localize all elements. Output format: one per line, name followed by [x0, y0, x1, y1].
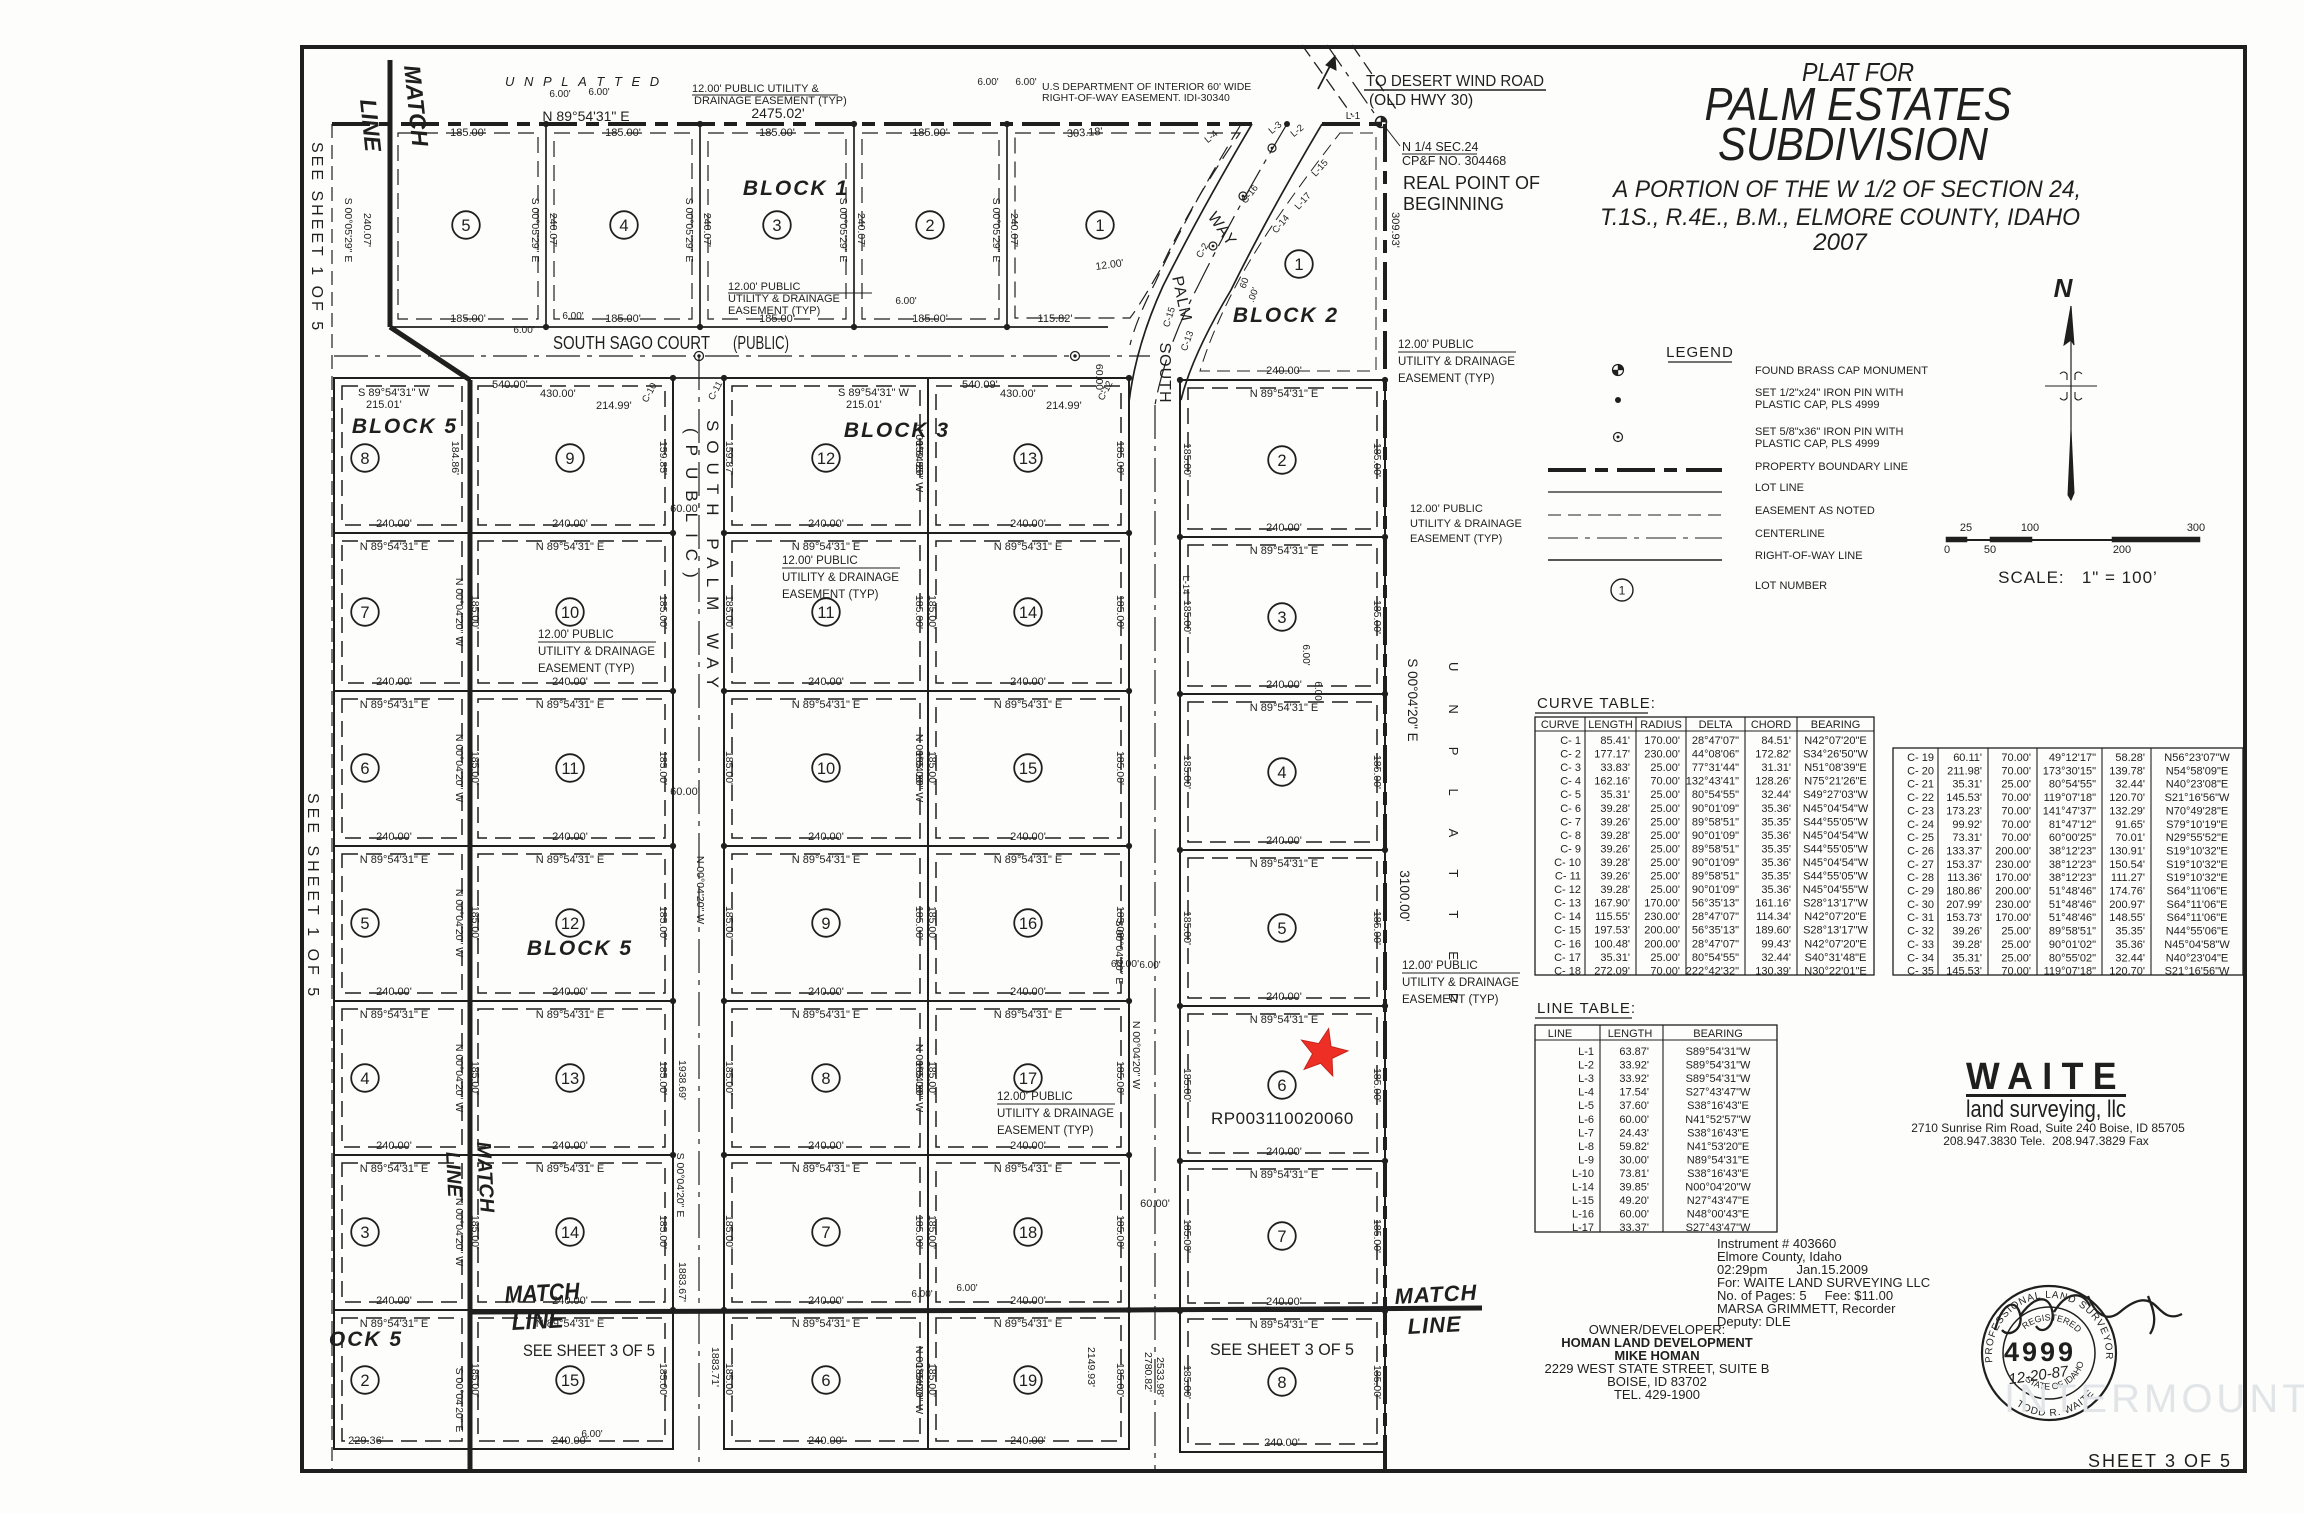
svg-text:119°07'18": 119°07'18" — [2044, 792, 2097, 804]
svg-text:8: 8 — [360, 450, 369, 468]
svg-text:C- 32: C- 32 — [1907, 926, 1934, 938]
svg-text:240.00': 240.00' — [808, 1140, 844, 1152]
svg-text:208.947.3830 Tele. 208.947.38: 208.947.3830 Tele. 208.947.3829 Fax — [1943, 1134, 2149, 1148]
svg-text:185.00': 185.00' — [1114, 441, 1126, 475]
svg-text:159.87': 159.87' — [723, 441, 735, 475]
svg-text:BEGINNING: BEGINNING — [1403, 194, 1504, 214]
svg-text:170.00': 170.00' — [1995, 872, 2031, 884]
svg-text:N48°00'43"E: N48°00'43"E — [1687, 1209, 1749, 1221]
svg-text:14: 14 — [1019, 604, 1037, 622]
svg-text:C- 2: C- 2 — [1560, 749, 1581, 761]
svg-text:189.60': 189.60' — [1755, 925, 1791, 937]
svg-text:N27°43'47"E: N27°43'47"E — [1687, 1195, 1749, 1207]
svg-text:MATCH: MATCH — [504, 1278, 581, 1309]
svg-text:BEARING: BEARING — [1693, 1028, 1743, 1040]
svg-text:LENGTH: LENGTH — [1588, 719, 1633, 731]
svg-text:19: 19 — [1019, 1372, 1037, 1390]
svg-text:SEE SHEET 3 OF 5: SEE SHEET 3 OF 5 — [1210, 1340, 1354, 1359]
svg-text:S 00°05'29" E: S 00°05'29" E — [529, 198, 541, 263]
svg-text:C- 13: C- 13 — [1554, 898, 1581, 910]
svg-text:60.00': 60.00' — [1140, 1198, 1170, 1210]
svg-text:185.00': 185.00' — [469, 595, 481, 629]
svg-text:120.70': 120.70' — [2109, 966, 2145, 978]
svg-text:25.00': 25.00' — [1650, 816, 1680, 828]
svg-text:C- 14: C- 14 — [1554, 911, 1581, 923]
svg-text:N41°53'20"E: N41°53'20"E — [1687, 1141, 1749, 1153]
svg-text:28°47'07": 28°47'07" — [1692, 938, 1739, 950]
svg-text:309.93': 309.93' — [1389, 212, 1401, 248]
svg-text:185.00': 185.00' — [657, 1363, 669, 1397]
svg-text:207.99': 207.99' — [1946, 899, 1982, 911]
svg-text:44°08'06": 44°08'06" — [1692, 749, 1739, 761]
svg-text:120.70': 120.70' — [2109, 792, 2145, 804]
svg-text:N 89°54'31" E: N 89°54'31" E — [1250, 702, 1319, 714]
svg-text:24.43': 24.43' — [1619, 1127, 1649, 1139]
svg-text:(OLD HWY 30): (OLD HWY 30) — [1369, 92, 1473, 109]
svg-text:161.16': 161.16' — [1755, 898, 1791, 910]
svg-text:90°01'09": 90°01'09" — [1692, 884, 1739, 896]
svg-text:170.00': 170.00' — [1995, 912, 2031, 924]
svg-text:L-9: L-9 — [1578, 1154, 1594, 1166]
svg-text:56°35'13": 56°35'13" — [1692, 925, 1739, 937]
svg-text:N 89°54'31" E: N 89°54'31" E — [994, 854, 1063, 866]
svg-text:170.00': 170.00' — [1644, 898, 1680, 910]
svg-text:S21°16'56"W: S21°16'56"W — [2165, 966, 2230, 978]
svg-text:N 89°54'31" E: N 89°54'31" E — [994, 1009, 1063, 1021]
svg-text:CHORD: CHORD — [1751, 719, 1791, 731]
svg-text:C- 22: C- 22 — [1907, 792, 1934, 804]
svg-text:1: 1 — [1095, 217, 1104, 235]
svg-text:90°01'02": 90°01'02" — [2049, 939, 2096, 951]
svg-text:200.97': 200.97' — [2109, 899, 2145, 911]
svg-text:25.00': 25.00' — [1650, 803, 1680, 815]
svg-text:L-14: L-14 — [1180, 575, 1191, 594]
svg-text:56°35'13": 56°35'13" — [1692, 898, 1739, 910]
svg-text:35.35': 35.35' — [1761, 871, 1791, 883]
svg-text:12.00' PUBLIC: 12.00' PUBLIC — [782, 555, 858, 567]
svg-text:91.65': 91.65' — [2115, 819, 2145, 831]
svg-text:25.00': 25.00' — [1650, 952, 1680, 964]
svg-text:2: 2 — [925, 217, 934, 235]
svg-text:185.00': 185.00' — [1371, 755, 1383, 789]
svg-text:185.00': 185.00' — [1181, 1365, 1193, 1399]
svg-text:200: 200 — [2113, 544, 2131, 556]
svg-text:39.28': 39.28' — [1600, 884, 1630, 896]
svg-text:N 89°54'31" E: N 89°54'31" E — [792, 541, 861, 553]
svg-text:240.00': 240.00' — [1010, 676, 1046, 688]
svg-text:L-15: L-15 — [1572, 1195, 1594, 1207]
svg-text:L-17: L-17 — [1572, 1222, 1594, 1234]
svg-text:60°00'25": 60°00'25" — [2049, 832, 2096, 844]
svg-text:185.00': 185.00' — [926, 1363, 938, 1397]
svg-text:240.07': 240.07' — [1008, 213, 1020, 247]
svg-text:6.00': 6.00' — [977, 77, 998, 88]
svg-text:230.00': 230.00' — [1644, 911, 1680, 923]
svg-text:185.00': 185.00' — [926, 1061, 938, 1095]
svg-text:N 89°54'31" E: N 89°54'31" E — [360, 1163, 429, 1175]
svg-text:N 89°54'31" E: N 89°54'31" E — [536, 1163, 605, 1175]
svg-text:EASEMENT (TYP): EASEMENT (TYP) — [728, 305, 820, 317]
svg-text:153.73': 153.73' — [1946, 912, 1982, 924]
svg-text:185.00': 185.00' — [657, 1061, 669, 1095]
svg-text:RIGHT-OF-WAY LINE: RIGHT-OF-WAY LINE — [1755, 550, 1863, 562]
svg-text:70.00': 70.00' — [2001, 765, 2031, 777]
svg-text:FOUND BRASS CAP MONUMENT: FOUND BRASS CAP MONUMENT — [1755, 365, 1928, 377]
svg-text:BLOCK 5: BLOCK 5 — [352, 415, 458, 438]
svg-text:73.31': 73.31' — [1952, 832, 1982, 844]
svg-text:185.00': 185.00' — [450, 127, 486, 139]
svg-text:C- 34: C- 34 — [1907, 952, 1934, 964]
svg-text:37.60': 37.60' — [1619, 1100, 1649, 1112]
svg-text:25.00': 25.00' — [1650, 857, 1680, 869]
svg-text:35.31': 35.31' — [1952, 779, 1982, 791]
svg-text:0: 0 — [1944, 544, 1950, 556]
svg-text:S89°54'31"W: S89°54'31"W — [1686, 1060, 1751, 1072]
svg-text:3100.00': 3100.00' — [1397, 870, 1412, 921]
svg-text:185.00': 185.00' — [605, 127, 641, 139]
svg-text:N 89°54'31" E: N 89°54'31" E — [536, 541, 605, 553]
svg-text:SET 1/2"x24" IRON PIN WITH: SET 1/2"x24" IRON PIN WITH — [1755, 387, 1903, 399]
svg-text:BLOCK 2: BLOCK 2 — [1233, 304, 1339, 327]
svg-text:N29°55'52"E: N29°55'52"E — [2166, 832, 2228, 844]
svg-text:240.00': 240.00' — [552, 518, 588, 530]
svg-text:C- 24: C- 24 — [1907, 819, 1934, 831]
svg-text:89°58'51": 89°58'51" — [1692, 816, 1739, 828]
svg-text:S 00°04'20" E: S 00°04'20" E — [1113, 920, 1125, 985]
svg-text:N44°55'06"E: N44°55'06"E — [2166, 926, 2228, 938]
svg-text:C- 35: C- 35 — [1907, 966, 1934, 978]
svg-text:RADIUS: RADIUS — [1640, 719, 1682, 731]
svg-text:C- 28: C- 28 — [1907, 872, 1934, 884]
svg-text:SOUTH SAGO COURT: SOUTH SAGO COURT — [553, 333, 710, 353]
svg-text:N42°07'20"E: N42°07'20"E — [1804, 735, 1866, 747]
svg-text:N56°23'07"W: N56°23'07"W — [2164, 752, 2230, 764]
svg-text:2: 2 — [1277, 452, 1286, 470]
svg-text:185.00': 185.00' — [1371, 600, 1383, 634]
svg-text:CURVE: CURVE — [1541, 719, 1579, 731]
svg-text:N54°58'09"E: N54°58'09"E — [2166, 765, 2228, 777]
svg-text:185.00': 185.00' — [1371, 1365, 1383, 1399]
svg-text:185.00': 185.00' — [1371, 443, 1383, 477]
svg-text:4: 4 — [1277, 764, 1286, 782]
svg-text:77°31'44": 77°31'44" — [1692, 762, 1739, 774]
svg-text:10: 10 — [817, 760, 835, 778]
svg-text:S38°16'43"E: S38°16'43"E — [1687, 1127, 1749, 1139]
svg-text:185.00': 185.00' — [1114, 595, 1126, 629]
svg-text:N 89°54'31" E: N 89°54'31" E — [1250, 1014, 1319, 1026]
svg-text:50: 50 — [1984, 544, 1996, 556]
svg-text:119°07'18": 119°07'18" — [2044, 966, 2097, 978]
svg-text:S 00°04'20" E: S 00°04'20" E — [453, 1368, 465, 1433]
svg-text:MATCH: MATCH — [1394, 1280, 1478, 1309]
svg-text:BLOCK 1: BLOCK 1 — [743, 177, 849, 200]
svg-text:6.00': 6.00' — [956, 1283, 977, 1294]
svg-text:115.82': 115.82' — [1038, 313, 1073, 325]
svg-text:240.00': 240.00' — [552, 676, 588, 688]
svg-text:215.01': 215.01' — [846, 399, 882, 411]
svg-text:173°30'15": 173°30'15" — [2043, 765, 2096, 777]
svg-text:39.28': 39.28' — [1600, 830, 1630, 842]
svg-text:SET 5/8"x36" IRON PIN WITH: SET 5/8"x36" IRON PIN WITH — [1755, 426, 1903, 438]
svg-text:32.44': 32.44' — [1761, 952, 1791, 964]
svg-text:5: 5 — [360, 915, 369, 933]
svg-text:35.36': 35.36' — [1761, 857, 1791, 869]
svg-text:12.00’ PUBLIC: 12.00’ PUBLIC — [1410, 503, 1483, 515]
svg-text:28°47'07": 28°47'07" — [1692, 735, 1739, 747]
svg-text:N51°08'39"E: N51°08'39"E — [1804, 762, 1866, 774]
svg-text:6.00': 6.00' — [911, 1289, 932, 1300]
svg-text:6: 6 — [1277, 1077, 1286, 1095]
svg-text:80°54'55": 80°54'55" — [1692, 952, 1739, 964]
svg-text:N 00°04'20" W: N 00°04'20" W — [453, 1198, 465, 1266]
svg-text:N45°04'55"W: N45°04'55"W — [1803, 884, 1869, 896]
svg-text:S40°31'48"E: S40°31'48"E — [1805, 952, 1867, 964]
svg-text:185.00': 185.00' — [913, 906, 925, 940]
svg-text:200.00': 200.00' — [1644, 925, 1680, 937]
svg-text:185.00': 185.00' — [912, 127, 948, 139]
svg-text:N41°52'57"W: N41°52'57"W — [1685, 1114, 1751, 1126]
svg-text:240.00': 240.00' — [1266, 365, 1302, 377]
svg-text:L-3: L-3 — [1578, 1073, 1594, 1085]
svg-text:8: 8 — [1277, 1374, 1286, 1392]
svg-text:185.00': 185.00' — [1114, 1061, 1126, 1095]
svg-text:39.26': 39.26' — [1952, 926, 1982, 938]
svg-text:LINE: LINE — [1407, 1311, 1463, 1339]
svg-text:28°47'07": 28°47'07" — [1692, 911, 1739, 923]
svg-text:N 00°04'20" W: N 00°04'20" W — [453, 734, 465, 802]
svg-text:1883.67': 1883.67' — [676, 1262, 688, 1302]
svg-text:90°01'09": 90°01'09" — [1692, 803, 1739, 815]
svg-text:113.36': 113.36' — [1947, 872, 1982, 884]
svg-text:N 89°54'31" E: N 89°54'31" E — [536, 854, 605, 866]
svg-text:185.00': 185.00' — [913, 595, 925, 629]
svg-text:UTILITY & DRAINAGE: UTILITY & DRAINAGE — [1402, 977, 1519, 989]
svg-text:12: 12 — [817, 450, 835, 468]
svg-text:N40°23'08"E: N40°23'08"E — [2166, 779, 2228, 791]
svg-text:25.00': 25.00' — [1650, 843, 1680, 855]
svg-text:185.00': 185.00' — [605, 313, 641, 325]
svg-text:C- 10: C- 10 — [1554, 857, 1581, 869]
svg-text:230.00': 230.00' — [1995, 899, 2031, 911]
svg-text:L-4: L-4 — [1578, 1087, 1594, 1099]
svg-text:25.00': 25.00' — [2001, 939, 2031, 951]
svg-text:C- 18: C- 18 — [1554, 965, 1581, 977]
svg-text:2007: 2007 — [1812, 229, 1868, 256]
svg-text:240.00': 240.00' — [808, 986, 844, 998]
svg-text:C- 20: C- 20 — [1907, 765, 1934, 777]
svg-text:S19°10'32"E: S19°10'32"E — [2166, 872, 2228, 884]
svg-text:240.00': 240.00' — [1266, 1296, 1302, 1308]
svg-text:C- 29: C- 29 — [1907, 886, 1934, 898]
svg-text:49°12'17": 49°12'17" — [2049, 752, 2096, 764]
svg-text:C- 9: C- 9 — [1560, 843, 1581, 855]
svg-text:S21°16'56"W: S21°16'56"W — [2165, 792, 2230, 804]
svg-text:240.00': 240.00' — [376, 986, 412, 998]
svg-text:1938.69': 1938.69' — [676, 1060, 688, 1100]
svg-text:185.00': 185.00' — [926, 751, 938, 785]
svg-text:229.36': 229.36' — [348, 1435, 384, 1447]
svg-text:39.26': 39.26' — [1600, 816, 1630, 828]
svg-text:C- 5: C- 5 — [1560, 789, 1581, 801]
svg-text:N 89°54'31" E: N 89°54'31" E — [360, 854, 429, 866]
svg-text:240.00': 240.00' — [1010, 1295, 1046, 1307]
svg-text:58.28': 58.28' — [2115, 752, 2145, 764]
svg-text:240.00': 240.00' — [376, 1140, 412, 1152]
svg-text:111.27': 111.27' — [2111, 872, 2145, 884]
svg-text:N75°21'26"E: N75°21'26"E — [1804, 776, 1866, 788]
svg-text:N 1/4 SEC.24: N 1/4 SEC.24 — [1402, 140, 1478, 154]
svg-text:35.36': 35.36' — [2115, 939, 2145, 951]
svg-text:185.00': 185.00' — [1371, 1219, 1383, 1253]
svg-text:25.00': 25.00' — [2001, 926, 2031, 938]
svg-text:14: 14 — [561, 1224, 579, 1242]
svg-text:S28°13'17"W: S28°13'17"W — [1803, 925, 1868, 937]
svg-text:128.26': 128.26' — [1755, 776, 1791, 788]
svg-text:185.00': 185.00' — [1181, 600, 1193, 634]
svg-text:C- 27: C- 27 — [1907, 859, 1934, 871]
svg-text:S 89°54'31" W: S 89°54'31" W — [838, 387, 910, 399]
svg-text:240.00': 240.00' — [1010, 1435, 1046, 1447]
svg-text:200.00': 200.00' — [1644, 938, 1680, 950]
svg-text:TO DESERT WIND ROAD: TO DESERT WIND ROAD — [1366, 73, 1544, 90]
svg-text:N89°54'31"E: N89°54'31"E — [1687, 1154, 1749, 1166]
svg-text:N 00°04'20" W: N 00°04'20" W — [913, 1346, 925, 1414]
svg-text:132°43'41": 132°43'41" — [1686, 776, 1739, 788]
svg-text:39.26': 39.26' — [1600, 871, 1630, 883]
svg-text:51°48'46": 51°48'46" — [2049, 886, 2096, 898]
svg-text:PLASTIC CAP, PLS 4999: PLASTIC CAP, PLS 4999 — [1755, 438, 1880, 450]
svg-text:35.35': 35.35' — [1761, 843, 1791, 855]
svg-text:16: 16 — [1019, 915, 1037, 933]
svg-text:N 00°04'20" W: N 00°04'20" W — [453, 889, 465, 957]
svg-text:LOT NUMBER: LOT NUMBER — [1755, 580, 1827, 592]
svg-text:land surveying, llc: land surveying, llc — [1966, 1096, 2126, 1123]
svg-text:N: N — [2054, 273, 2074, 303]
svg-text:31.31': 31.31' — [1761, 762, 1791, 774]
svg-text:185.00': 185.00' — [1181, 1068, 1193, 1102]
svg-text:184.86': 184.86' — [449, 441, 461, 475]
svg-text:BEARING: BEARING — [1811, 719, 1861, 731]
svg-text:2475.02': 2475.02' — [751, 105, 804, 121]
svg-text:9: 9 — [821, 915, 830, 933]
svg-text:148.55': 148.55' — [2109, 912, 2145, 924]
svg-text:60.00': 60.00' — [1093, 364, 1105, 392]
svg-text:63.87': 63.87' — [1619, 1046, 1649, 1058]
svg-text:EASEMENT (TYP): EASEMENT (TYP) — [997, 1125, 1094, 1137]
svg-text:N 89°54'31" E: N 89°54'31" E — [360, 541, 429, 553]
svg-text:12.00' PUBLIC: 12.00' PUBLIC — [1402, 960, 1478, 972]
svg-text:N45°04'54"W: N45°04'54"W — [1803, 857, 1869, 869]
svg-text:S44°55'05"W: S44°55'05"W — [1803, 816, 1868, 828]
svg-text:240.00': 240.00' — [376, 1295, 412, 1307]
svg-text:185.00': 185.00' — [469, 1061, 481, 1095]
svg-text:240.00': 240.00' — [808, 518, 844, 530]
svg-text:(PUBLIC): (PUBLIC) — [733, 333, 789, 353]
svg-text:LINE TABLE:: LINE TABLE: — [1537, 1000, 1636, 1017]
svg-text:S49°27'03"W: S49°27'03"W — [1803, 789, 1868, 801]
svg-text:2533.98': 2533.98' — [1154, 1357, 1166, 1397]
svg-text:200.00': 200.00' — [1995, 845, 2031, 857]
svg-text:185.00': 185.00' — [759, 127, 795, 139]
svg-text:S 00°05'29" E: S 00°05'29" E — [342, 198, 354, 263]
svg-text:6.00': 6.00' — [581, 1429, 602, 1440]
svg-text:6.00': 6.00' — [588, 87, 609, 98]
svg-text:UTILITY & DRAINAGE: UTILITY & DRAINAGE — [538, 646, 655, 658]
svg-text:Deputy: DLE: Deputy: DLE — [1717, 1314, 1791, 1329]
svg-text:4: 4 — [360, 1070, 369, 1088]
svg-text:S19°10'32"E: S19°10'32"E — [2166, 859, 2228, 871]
svg-text:A PORTION OF THE W 1/2 OF SECT: A PORTION OF THE W 1/2 OF SECTION 24, — [1611, 176, 2081, 203]
svg-text:L-16: L-16 — [1572, 1209, 1594, 1221]
svg-text:185.00': 185.00' — [913, 1215, 925, 1249]
svg-text:WAITE: WAITE — [1966, 1056, 2126, 1098]
svg-text:185.00': 185.00' — [1114, 1363, 1126, 1397]
svg-text:51°48'46": 51°48'46" — [2049, 912, 2096, 924]
svg-text:SOUTH PALM WAY: SOUTH PALM WAY — [703, 420, 722, 697]
svg-text:1: 1 — [1619, 584, 1626, 598]
svg-text:90°01'09": 90°01'09" — [1692, 857, 1739, 869]
svg-text:N 89°54'31" E: N 89°54'31" E — [994, 541, 1063, 553]
svg-text:84.51': 84.51' — [1761, 735, 1791, 747]
svg-text:LINE: LINE — [1548, 1028, 1572, 1040]
svg-text:6.00': 6.00' — [895, 296, 916, 307]
svg-text:TEL. 429-1900: TEL. 429-1900 — [1614, 1387, 1700, 1402]
svg-text:540.00': 540.00' — [492, 379, 528, 391]
svg-text:S64°11'06"E: S64°11'06"E — [2167, 886, 2228, 898]
svg-text:39.28': 39.28' — [1952, 939, 1982, 951]
svg-text:139.78': 139.78' — [2109, 765, 2145, 777]
svg-text:30.00': 30.00' — [1619, 1154, 1649, 1166]
svg-text:33.92': 33.92' — [1619, 1073, 1649, 1085]
svg-text:35.35': 35.35' — [1761, 816, 1791, 828]
svg-text:8: 8 — [821, 1070, 830, 1088]
svg-text:185.00': 185.00' — [469, 1215, 481, 1249]
svg-text:10: 10 — [561, 604, 579, 622]
svg-text:114.34': 114.34' — [1756, 911, 1791, 923]
svg-text:35.31': 35.31' — [1952, 952, 1982, 964]
svg-text:240.07': 240.07' — [361, 213, 373, 247]
svg-text:SOUTH: SOUTH — [1156, 343, 1173, 404]
svg-text:EASEMENT AS NOTED: EASEMENT AS NOTED — [1755, 505, 1875, 517]
svg-text:LINE: LINE — [355, 98, 386, 153]
svg-text:185.00': 185.00' — [657, 751, 669, 785]
svg-text:SEE SHEET 1 OF 5: SEE SHEET 1 OF 5 — [304, 793, 321, 1000]
svg-text:35.36': 35.36' — [1761, 830, 1791, 842]
svg-text:N 00°04'20" W: N 00°04'20" W — [913, 734, 925, 802]
svg-text:DELTA: DELTA — [1699, 719, 1733, 731]
svg-text:S38°16'43"E: S38°16'43"E — [1687, 1100, 1749, 1112]
svg-text:C- 19: C- 19 — [1907, 752, 1934, 764]
svg-text:N 89°54'31" E: N 89°54'31" E — [792, 699, 861, 711]
svg-text:59.82': 59.82' — [1619, 1141, 1649, 1153]
svg-text:12.00' PUBLIC: 12.00' PUBLIC — [1398, 339, 1474, 351]
svg-text:35.36': 35.36' — [1761, 884, 1791, 896]
svg-text:6.00': 6.00' — [562, 311, 583, 322]
svg-text:99.43': 99.43' — [1761, 938, 1791, 950]
svg-text:85.41': 85.41' — [1600, 735, 1630, 747]
svg-text:S79°10'19"E: S79°10'19"E — [2166, 819, 2228, 831]
svg-text:25.00': 25.00' — [1650, 871, 1680, 883]
svg-text:C- 30: C- 30 — [1907, 899, 1934, 911]
svg-text:C- 33: C- 33 — [1907, 939, 1934, 951]
svg-text:185.00': 185.00' — [1181, 443, 1193, 477]
svg-text:5: 5 — [461, 217, 470, 235]
svg-text:LENGTH: LENGTH — [1608, 1028, 1653, 1040]
svg-text:17.54': 17.54' — [1619, 1087, 1649, 1099]
svg-text:UTILITY & DRAINAGE: UTILITY & DRAINAGE — [1410, 518, 1522, 530]
svg-text:N 89°54'31" E: N 89°54'31" E — [1250, 545, 1319, 557]
svg-text:MATCH: MATCH — [472, 1141, 498, 1213]
